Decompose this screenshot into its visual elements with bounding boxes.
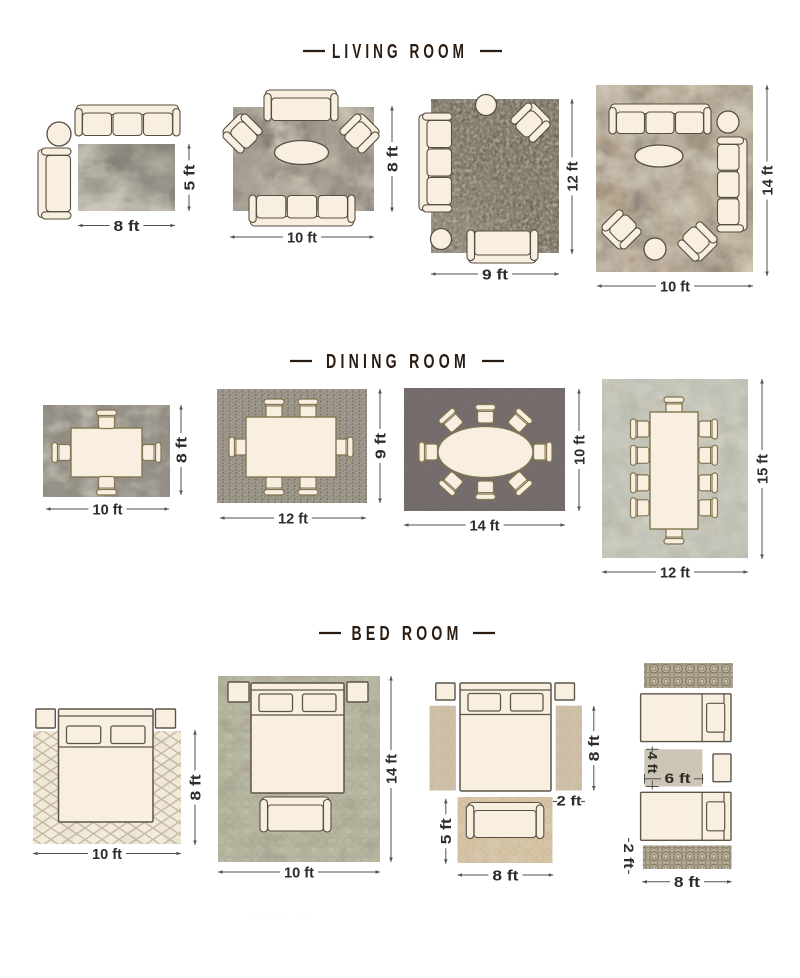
svg-text:8 ft: 8 ft — [384, 146, 401, 172]
svg-text:10 ft: 10 ft — [92, 846, 122, 863]
svg-text:10 ft: 10 ft — [571, 435, 588, 465]
svg-text:14 ft: 14 ft — [383, 754, 400, 784]
svg-text:10 ft: 10 ft — [660, 278, 690, 295]
svg-text:8 ft: 8 ft — [674, 874, 700, 891]
svg-text:6 ft: 6 ft — [665, 770, 691, 786]
svg-text:DINING ROOM: DINING ROOM — [326, 351, 470, 373]
svg-text:8 ft: 8 ft — [187, 774, 204, 800]
svg-text:8 ft: 8 ft — [492, 867, 518, 884]
svg-text:5 ft: 5 ft — [438, 818, 455, 844]
svg-text:12 ft: 12 ft — [278, 510, 308, 527]
svg-text:10 ft: 10 ft — [284, 864, 314, 881]
svg-text:10 ft: 10 ft — [93, 501, 123, 518]
svg-text:8 ft: 8 ft — [173, 437, 190, 463]
svg-text:8 ft: 8 ft — [114, 218, 140, 235]
svg-text:10 ft: 10 ft — [287, 229, 317, 246]
svg-text:2 ft: 2 ft — [557, 793, 582, 809]
svg-text:9 ft: 9 ft — [372, 433, 389, 459]
svg-text:5 ft: 5 ft — [181, 164, 198, 190]
svg-text:12 ft: 12 ft — [564, 161, 581, 191]
svg-text:BED ROOM: BED ROOM — [352, 623, 463, 645]
svg-text:. . . . . .: . . . . . . — [255, 908, 312, 917]
svg-text:4 ft: 4 ft — [645, 752, 660, 775]
svg-text:12 ft: 12 ft — [660, 564, 690, 581]
svg-text:LIVING ROOM: LIVING ROOM — [332, 41, 468, 63]
svg-text:15 ft: 15 ft — [754, 454, 771, 484]
svg-text:9 ft: 9 ft — [482, 266, 508, 283]
svg-text:8 ft: 8 ft — [586, 735, 603, 761]
svg-text:14 ft: 14 ft — [759, 165, 776, 195]
svg-text:14 ft: 14 ft — [470, 517, 500, 534]
svg-text:2 ft: 2 ft — [621, 844, 637, 869]
